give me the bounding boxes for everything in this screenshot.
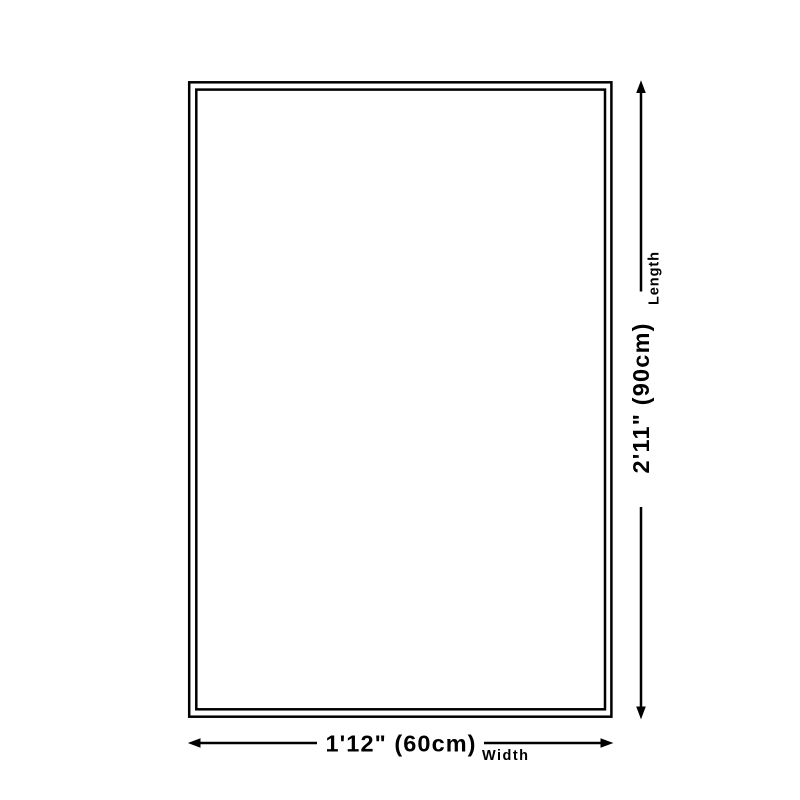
svg-text:Width: Width	[482, 748, 528, 764]
svg-text:1'12" (60cm): 1'12" (60cm)	[326, 730, 476, 756]
svg-text:2'11" (90cm): 2'11" (90cm)	[628, 324, 654, 474]
svg-text:Length: Length	[647, 252, 663, 305]
